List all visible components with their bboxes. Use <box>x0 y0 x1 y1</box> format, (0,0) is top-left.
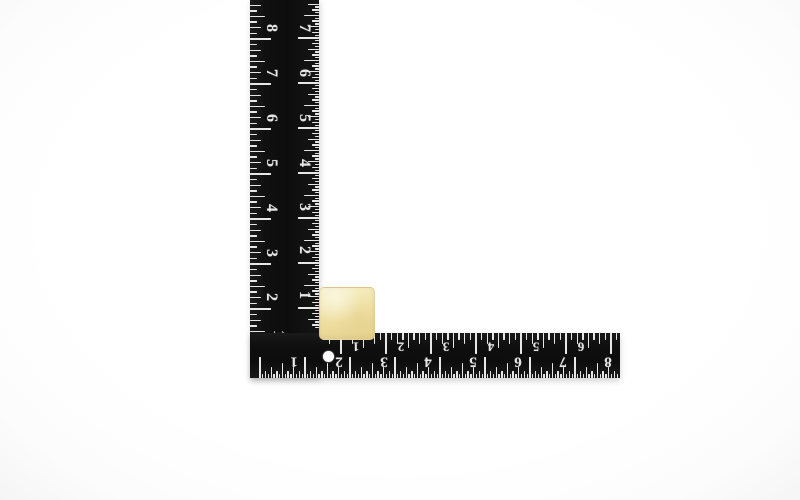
tick-mark <box>458 333 459 340</box>
scale-number: 5 <box>533 341 540 354</box>
tick-mark <box>375 374 376 379</box>
tick-mark <box>315 63 320 64</box>
tick-mark <box>315 102 320 103</box>
tick-mark <box>250 168 257 169</box>
tick-mark <box>515 374 516 379</box>
tick-mark <box>442 374 443 379</box>
scale-number: 4 <box>296 159 312 167</box>
tick-mark <box>529 357 531 378</box>
tick-mark <box>287 371 288 378</box>
tick-mark <box>456 371 457 378</box>
tick-mark <box>298 217 319 219</box>
tick-mark <box>312 313 319 314</box>
scale-number: 2 <box>263 293 279 301</box>
tick-mark <box>431 374 432 379</box>
tick-mark <box>569 371 570 378</box>
tick-mark <box>312 279 319 280</box>
tick-mark <box>312 234 319 235</box>
tick-mark <box>304 285 319 287</box>
tick-mark <box>250 33 257 34</box>
tick-mark <box>520 333 522 354</box>
tick-mark <box>307 374 308 379</box>
tick-mark <box>543 374 544 379</box>
tick-mark <box>507 363 509 378</box>
tick-mark <box>250 100 257 101</box>
tick-mark <box>313 374 314 379</box>
tick-mark <box>312 32 319 33</box>
tick-mark <box>557 371 558 378</box>
tick-mark <box>312 155 319 156</box>
tick-mark <box>308 274 319 275</box>
tick-mark <box>302 374 303 379</box>
tick-mark <box>315 276 320 277</box>
tick-mark <box>541 367 542 378</box>
scale-number: 7 <box>263 69 279 77</box>
scale-number: 4 <box>488 341 495 354</box>
tick-mark <box>419 333 420 344</box>
tick-mark <box>434 371 435 378</box>
tick-mark <box>312 245 319 246</box>
tick-mark <box>369 374 370 379</box>
tick-mark <box>476 374 477 379</box>
tick-mark <box>250 185 261 186</box>
tick-mark <box>462 363 464 378</box>
tick-mark <box>436 333 437 340</box>
tick-mark <box>315 181 320 182</box>
tick-mark <box>411 371 412 378</box>
sponge-cube <box>319 287 375 340</box>
tick-mark <box>250 275 261 276</box>
tick-mark <box>315 226 320 227</box>
tick-mark <box>312 302 319 303</box>
scale-number: 3 <box>263 249 279 257</box>
scale-number: 1 <box>353 341 360 354</box>
tick-mark <box>250 66 257 67</box>
tick-mark <box>315 260 320 261</box>
tick-mark <box>315 243 320 244</box>
tick-mark <box>315 231 320 232</box>
tick-mark <box>315 141 320 142</box>
scale-number: 4 <box>263 204 279 212</box>
tick-mark <box>250 61 265 63</box>
scale-number: 2 <box>296 246 312 254</box>
tick-mark <box>498 333 500 348</box>
tick-mark <box>271 367 272 378</box>
tick-mark <box>250 280 257 281</box>
tick-mark <box>304 60 319 62</box>
scale-number: 5 <box>296 114 312 122</box>
tick-mark <box>352 374 353 379</box>
tick-mark <box>437 374 438 379</box>
scale-number: 8 <box>263 24 279 32</box>
tick-mark <box>614 371 615 378</box>
scale-number: 6 <box>578 341 585 354</box>
tick-mark <box>312 144 319 145</box>
tick-mark <box>312 77 319 78</box>
tick-mark <box>304 150 319 152</box>
tick-mark <box>250 89 257 90</box>
tick-mark <box>482 374 483 379</box>
tick-mark <box>380 333 381 340</box>
tick-mark <box>509 333 510 344</box>
tick-mark <box>560 374 561 379</box>
tick-mark <box>308 139 319 140</box>
tick-mark <box>318 374 319 379</box>
hanging-hole <box>323 351 334 362</box>
tick-mark <box>355 371 356 378</box>
tick-mark <box>250 128 271 130</box>
tick-mark <box>470 374 471 379</box>
scale-number: 2 <box>398 341 405 354</box>
tick-mark <box>599 333 600 344</box>
tick-mark <box>413 333 414 340</box>
tick-mark <box>304 195 319 197</box>
tick-mark <box>315 113 320 114</box>
tick-mark <box>250 246 257 247</box>
tick-mark <box>408 333 410 348</box>
tick-mark <box>315 237 320 238</box>
tick-mark <box>358 374 359 379</box>
tick-mark <box>315 12 320 13</box>
tick-mark <box>298 82 319 84</box>
tick-mark <box>315 51 320 52</box>
scale-number: 3 <box>380 354 388 369</box>
scale-number: 8 <box>604 354 612 369</box>
tick-mark <box>312 268 319 269</box>
tick-mark <box>250 218 271 220</box>
tick-mark <box>276 371 277 378</box>
tick-mark <box>600 374 601 379</box>
tick-mark <box>315 130 320 131</box>
tick-mark <box>385 333 387 354</box>
scale-number: 2 <box>335 354 343 369</box>
tick-mark <box>315 209 320 210</box>
tick-mark <box>574 357 576 378</box>
tick-mark <box>315 175 320 176</box>
tick-mark <box>298 262 319 264</box>
tick-mark <box>397 374 398 379</box>
tick-mark <box>250 207 261 208</box>
tick-mark <box>386 374 387 379</box>
tick-mark <box>250 106 265 108</box>
tick-mark <box>347 374 348 379</box>
tick-mark <box>391 333 392 340</box>
tick-mark <box>594 374 595 379</box>
scale-number: 7 <box>559 354 567 369</box>
tick-mark <box>250 291 257 292</box>
scale-number: 5 <box>263 159 279 167</box>
tick-mark <box>312 122 319 123</box>
tick-mark <box>308 49 319 50</box>
tick-mark <box>532 374 533 379</box>
tick-mark <box>315 136 320 137</box>
tick-mark <box>299 371 300 378</box>
tick-mark <box>308 4 319 5</box>
scene: 87654321INCH 7654321 123456 12345678 <box>0 0 800 500</box>
tick-mark <box>324 374 325 379</box>
tick-mark <box>315 192 320 193</box>
tick-mark <box>268 374 269 379</box>
tick-mark <box>259 357 261 378</box>
tick-mark <box>501 371 502 378</box>
tick-mark <box>250 179 257 180</box>
tick-mark <box>304 15 319 17</box>
tick-mark <box>577 374 578 379</box>
tick-mark <box>312 324 319 325</box>
tick-mark <box>312 167 319 168</box>
tick-mark <box>250 117 261 118</box>
tick-mark <box>341 374 342 379</box>
tick-mark <box>298 307 319 309</box>
tick-mark <box>312 290 319 291</box>
tick-mark <box>250 252 261 253</box>
tick-mark <box>445 371 446 378</box>
tick-mark <box>453 374 454 379</box>
tick-mark <box>538 374 539 379</box>
tick-mark <box>250 224 257 225</box>
tick-mark <box>250 230 261 231</box>
tick-mark <box>403 374 404 379</box>
scale-number: 1 <box>296 291 312 299</box>
tick-mark <box>308 229 319 230</box>
tick-mark <box>526 333 527 340</box>
tick-mark <box>250 27 261 28</box>
ruler-vertical-arm: 87654321INCH 7654321 <box>250 0 319 378</box>
tick-mark <box>312 110 319 111</box>
tick-mark <box>586 367 587 378</box>
tick-mark <box>490 371 491 378</box>
scale-number: 6 <box>296 69 312 77</box>
tick-mark <box>451 367 452 378</box>
tick-mark <box>315 74 320 75</box>
tick-mark <box>315 91 320 92</box>
tick-mark <box>389 371 390 378</box>
tick-mark <box>332 371 333 378</box>
tick-mark <box>315 248 320 249</box>
tick-mark <box>250 173 271 175</box>
tick-mark <box>250 55 257 56</box>
tick-mark <box>250 196 265 198</box>
tick-mark <box>484 357 486 378</box>
tick-mark <box>535 371 536 378</box>
tick-mark <box>298 37 319 39</box>
tick-mark <box>310 371 311 378</box>
tick-mark <box>588 374 589 379</box>
tick-mark <box>498 374 499 379</box>
tick-mark <box>308 94 319 95</box>
ruler-horizontal-arm: 123456 12345678 <box>250 333 620 378</box>
tick-mark <box>250 297 261 298</box>
tick-mark <box>315 220 320 221</box>
tick-mark <box>250 111 257 112</box>
scale-number: 3 <box>296 203 312 211</box>
tick-mark <box>250 325 257 326</box>
tick-mark <box>475 333 477 354</box>
tick-mark <box>515 333 516 340</box>
tick-mark <box>250 258 257 259</box>
tick-mark <box>250 16 265 18</box>
tick-mark <box>315 108 320 109</box>
tick-mark <box>315 254 320 255</box>
tick-mark <box>315 46 320 47</box>
tick-mark <box>312 257 319 258</box>
tick-mark <box>380 374 381 379</box>
tick-mark <box>285 374 286 379</box>
tick-mark <box>312 43 319 44</box>
tick-mark <box>593 333 594 340</box>
tick-mark <box>315 198 320 199</box>
tick-mark <box>548 333 549 340</box>
tick-mark <box>308 184 319 185</box>
tick-mark <box>312 200 319 201</box>
tick-mark <box>312 54 319 55</box>
tick-mark <box>616 333 617 340</box>
tick-mark <box>496 367 497 378</box>
tick-mark <box>250 308 271 310</box>
tick-mark <box>250 10 257 11</box>
tick-mark <box>282 363 284 378</box>
tick-mark <box>250 134 257 135</box>
tick-mark <box>487 374 488 379</box>
tick-mark <box>250 145 257 146</box>
tick-mark <box>250 38 271 40</box>
tick-mark <box>420 374 421 379</box>
tick-mark <box>250 21 257 22</box>
tick-mark <box>408 374 409 379</box>
tick-mark <box>425 333 426 340</box>
tick-mark <box>580 371 581 378</box>
tick-mark <box>465 374 466 379</box>
tick-mark <box>344 371 345 378</box>
tick-mark <box>315 164 320 165</box>
tick-mark <box>315 125 320 126</box>
tick-mark <box>430 333 432 354</box>
scale-number: 3 <box>443 341 450 354</box>
tick-mark <box>316 367 317 378</box>
tick-mark <box>315 80 320 81</box>
tick-mark <box>315 6 320 7</box>
tick-mark <box>250 44 257 45</box>
tick-mark <box>250 156 257 157</box>
tick-mark <box>459 374 460 379</box>
tick-mark <box>250 140 261 141</box>
tick-mark <box>315 85 320 86</box>
tick-mark <box>464 333 465 344</box>
tick-mark <box>315 203 320 204</box>
tick-mark <box>366 371 367 378</box>
tick-mark <box>425 374 426 379</box>
tick-mark <box>572 374 573 379</box>
tick-mark <box>439 357 441 378</box>
tick-mark <box>250 241 265 243</box>
tick-mark <box>377 371 378 378</box>
tick-mark <box>265 371 266 378</box>
tick-mark <box>312 212 319 213</box>
tick-mark <box>315 35 320 36</box>
tick-mark <box>363 374 364 379</box>
tick-mark <box>527 374 528 379</box>
tick-mark <box>549 374 550 379</box>
tick-mark <box>312 223 319 224</box>
tick-mark <box>524 371 525 378</box>
tick-mark <box>315 186 320 187</box>
tick-mark <box>315 153 320 154</box>
tick-mark <box>312 88 319 89</box>
tick-mark <box>250 151 265 153</box>
tick-mark <box>555 374 556 379</box>
tick-mark <box>250 162 261 163</box>
tick-mark <box>571 333 572 340</box>
tick-mark <box>330 374 331 379</box>
tick-mark <box>467 371 468 378</box>
tick-mark <box>315 29 320 30</box>
tick-mark <box>250 320 261 321</box>
tick-mark <box>250 314 257 315</box>
tick-mark <box>605 333 606 340</box>
tick-mark <box>312 20 319 21</box>
tick-mark <box>250 201 257 202</box>
tick-mark <box>315 288 320 289</box>
tick-mark <box>250 235 257 236</box>
tick-mark <box>321 371 322 378</box>
tick-mark <box>543 333 545 348</box>
tick-mark <box>315 282 320 283</box>
tick-mark <box>448 374 449 379</box>
tick-mark <box>315 215 320 216</box>
tick-mark <box>312 133 319 134</box>
tick-mark <box>417 363 419 378</box>
tick-mark <box>610 333 612 354</box>
tick-mark <box>250 190 257 191</box>
tick-mark <box>394 357 396 378</box>
tick-mark <box>250 303 257 304</box>
tick-mark <box>250 5 261 6</box>
tick-mark <box>250 213 257 214</box>
tick-mark <box>298 172 319 174</box>
tick-mark <box>372 363 374 378</box>
tick-mark <box>406 367 407 378</box>
tick-mark <box>327 363 329 378</box>
tick-mark <box>554 333 555 344</box>
scale-number: 7 <box>296 24 312 32</box>
tick-mark <box>605 374 606 379</box>
tick-mark <box>250 263 271 265</box>
tick-mark <box>304 240 319 242</box>
tick-mark <box>335 374 336 379</box>
tick-mark <box>312 65 319 66</box>
tick-mark <box>602 371 603 378</box>
tick-mark <box>312 178 319 179</box>
tick-mark <box>453 333 455 348</box>
tick-mark <box>546 371 547 378</box>
tick-mark <box>315 265 320 266</box>
tick-mark <box>521 374 522 379</box>
tick-mark <box>392 374 393 379</box>
tick-mark <box>250 78 257 79</box>
tick-mark <box>279 374 280 379</box>
tick-mark <box>308 319 319 320</box>
tick-mark <box>583 374 584 379</box>
tick-mark <box>565 333 567 354</box>
tick-mark <box>481 333 482 340</box>
tick-mark <box>552 363 554 378</box>
tick-mark <box>315 18 320 19</box>
tick-mark <box>470 333 471 340</box>
tick-mark <box>296 374 297 379</box>
tick-mark <box>315 40 320 41</box>
tick-mark <box>250 72 261 73</box>
tick-mark <box>250 95 261 96</box>
